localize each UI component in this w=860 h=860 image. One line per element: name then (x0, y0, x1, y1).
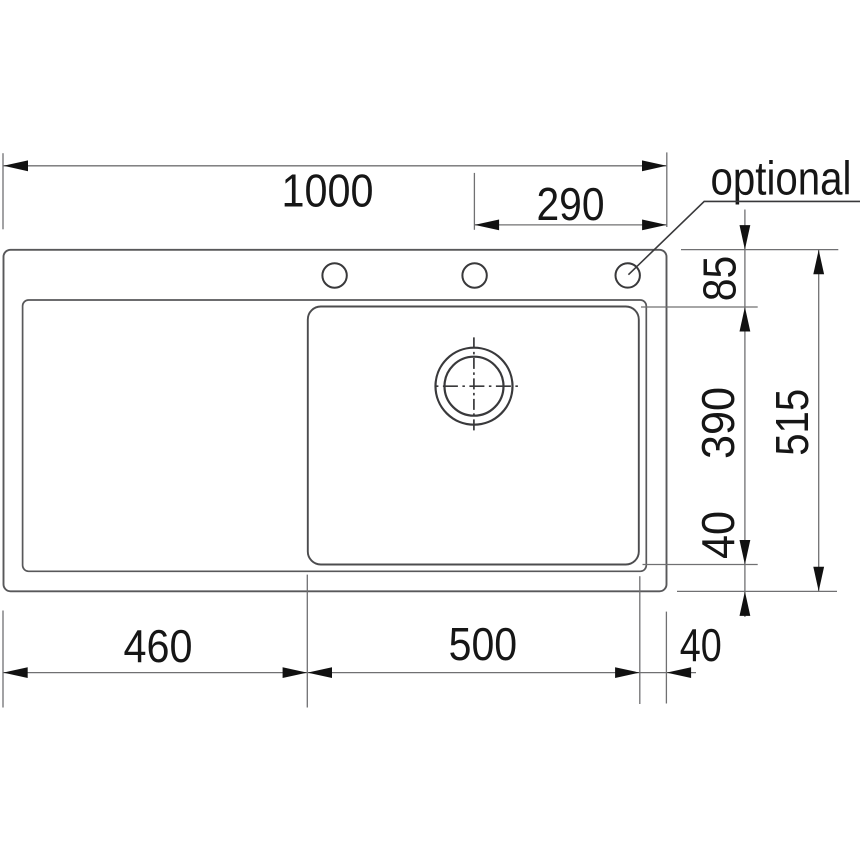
svg-text:460: 460 (124, 620, 193, 672)
svg-text:85: 85 (694, 256, 746, 302)
svg-text:optional: optional (711, 152, 852, 205)
svg-text:1000: 1000 (282, 164, 374, 216)
svg-text:40: 40 (692, 511, 744, 559)
svg-text:40: 40 (680, 619, 722, 671)
svg-text:515: 515 (766, 389, 818, 456)
svg-text:500: 500 (449, 618, 518, 670)
svg-text:390: 390 (692, 387, 744, 459)
svg-text:290: 290 (537, 178, 605, 230)
